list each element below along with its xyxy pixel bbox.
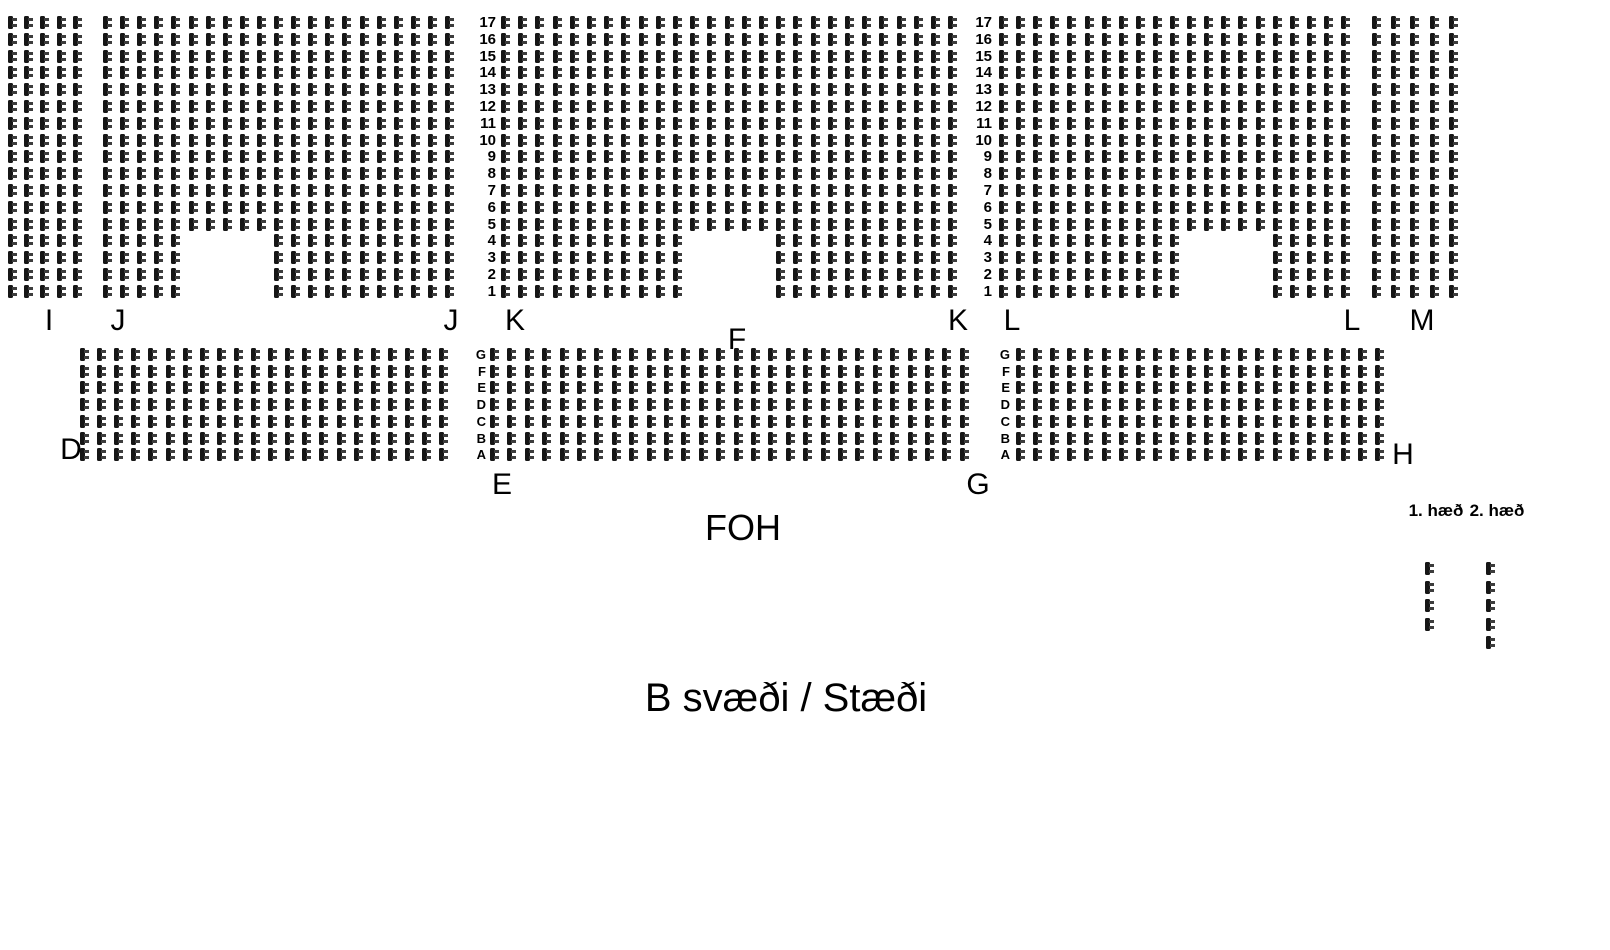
seat-icon-section-K-F[interactable]	[656, 100, 666, 113]
seat-icon-section-EG-block[interactable]	[873, 432, 883, 445]
seat-icon-section-L[interactable]	[1290, 251, 1300, 264]
seat-icon-section-K-F[interactable]	[931, 201, 941, 214]
seat-icon-section-J[interactable]	[411, 251, 421, 264]
seat-icon-section-J[interactable]	[257, 16, 267, 29]
seat-icon-section-K-F[interactable]	[707, 117, 717, 130]
seat-icon-section-J[interactable]	[274, 251, 284, 264]
seat-icon-section-I[interactable]	[24, 100, 34, 113]
seat-icon-section-K-F[interactable]	[759, 83, 769, 96]
seat-icon-section-I[interactable]	[73, 268, 83, 281]
seat-icon-section-D-block[interactable]	[131, 381, 141, 394]
seat-icon-section-J[interactable]	[428, 150, 438, 163]
seat-icon-section-H-block[interactable]	[1084, 448, 1094, 461]
seat-icon-section-J[interactable]	[171, 150, 181, 163]
seat-icon-section-I[interactable]	[24, 50, 34, 63]
seat-icon-section-K-F[interactable]	[725, 218, 735, 231]
seat-icon-section-J[interactable]	[377, 66, 387, 79]
seat-icon-section-L[interactable]	[1170, 251, 1180, 264]
seat-icon-section-L[interactable]	[1204, 150, 1214, 163]
seat-icon-section-K-F[interactable]	[793, 218, 803, 231]
seat-icon-section-L[interactable]	[1324, 201, 1334, 214]
seat-icon-section-J[interactable]	[428, 167, 438, 180]
seat-icon-section-K-F[interactable]	[656, 66, 666, 79]
seat-icon-section-EG-block[interactable]	[838, 365, 848, 378]
seat-icon-section-J[interactable]	[120, 150, 130, 163]
seat-icon-section-EG-block[interactable]	[873, 348, 883, 361]
seat-icon-section-K-F[interactable]	[707, 201, 717, 214]
seat-icon-section-J[interactable]	[428, 134, 438, 147]
seat-icon-section-K-F[interactable]	[639, 285, 649, 298]
seat-icon-section-K-F[interactable]	[879, 201, 889, 214]
seat-icon-section-K-F[interactable]	[931, 251, 941, 264]
seat-icon-section-K-F[interactable]	[604, 218, 614, 231]
seat-icon-section-J[interactable]	[428, 184, 438, 197]
seat-icon-section-K-F[interactable]	[518, 100, 528, 113]
seat-icon-section-EG-block[interactable]	[942, 448, 952, 461]
seat-icon-section-K-F[interactable]	[845, 117, 855, 130]
seat-icon-section-J[interactable]	[394, 16, 404, 29]
seat-icon-section-M[interactable]	[1430, 201, 1440, 214]
seat-icon-section-J[interactable]	[120, 33, 130, 46]
seat-icon-section-H-block[interactable]	[1102, 365, 1112, 378]
seat-icon-section-EG-block[interactable]	[821, 415, 831, 428]
seat-icon-section-H-block[interactable]	[1067, 398, 1077, 411]
seat-icon-section-I[interactable]	[57, 83, 67, 96]
seat-icon-section-H-block[interactable]	[1307, 381, 1317, 394]
seat-icon-section-M[interactable]	[1391, 184, 1401, 197]
seat-icon-section-J[interactable]	[240, 218, 250, 231]
seat-icon-section-J[interactable]	[394, 50, 404, 63]
seat-icon-section-I[interactable]	[57, 218, 67, 231]
seat-icon-section-M[interactable]	[1372, 134, 1382, 147]
seat-icon-section-J[interactable]	[206, 134, 216, 147]
seat-icon-section-K-F[interactable]	[931, 50, 941, 63]
seat-icon-section-M[interactable]	[1372, 150, 1382, 163]
seat-icon-section-J[interactable]	[171, 184, 181, 197]
seat-icon-section-L[interactable]	[1341, 150, 1351, 163]
seat-icon-section-K-F[interactable]	[639, 83, 649, 96]
seat-icon-section-EG-block[interactable]	[786, 415, 796, 428]
seat-icon-section-EG-block[interactable]	[577, 381, 587, 394]
seat-icon-section-M[interactable]	[1410, 184, 1420, 197]
seat-icon-section-EG-block[interactable]	[490, 448, 500, 461]
seat-icon-section-EG-block[interactable]	[960, 365, 970, 378]
seat-icon-section-H-block[interactable]	[1307, 398, 1317, 411]
seat-icon-section-H-block[interactable]	[1221, 432, 1231, 445]
seat-icon-section-K-F[interactable]	[811, 83, 821, 96]
seat-icon-section-L[interactable]	[1102, 100, 1112, 113]
seat-icon-section-J[interactable]	[394, 251, 404, 264]
seat-icon-section-EG-block[interactable]	[507, 381, 517, 394]
seat-icon-section-K-F[interactable]	[725, 16, 735, 29]
seat-icon-section-EG-block[interactable]	[786, 448, 796, 461]
seat-icon-section-K-F[interactable]	[553, 66, 563, 79]
seat-icon-section-J[interactable]	[154, 285, 164, 298]
seat-icon-section-K-F[interactable]	[931, 218, 941, 231]
seat-icon-section-K-F[interactable]	[604, 16, 614, 29]
seat-icon-section-H-block[interactable]	[1238, 381, 1248, 394]
seat-icon-section-L[interactable]	[1119, 16, 1129, 29]
seat-icon-section-J[interactable]	[171, 134, 181, 147]
seat-icon-section-J[interactable]	[394, 201, 404, 214]
seat-icon-section-D-block[interactable]	[337, 381, 347, 394]
seat-icon-section-H-block[interactable]	[1375, 448, 1385, 461]
seat-icon-section-EG-block[interactable]	[490, 365, 500, 378]
seat-icon-section-EG-block[interactable]	[542, 432, 552, 445]
seat-icon-section-K-F[interactable]	[845, 184, 855, 197]
seat-icon-section-K-F[interactable]	[535, 117, 545, 130]
seat-icon-section-J[interactable]	[308, 134, 318, 147]
seat-icon-section-K-F[interactable]	[879, 117, 889, 130]
seat-icon-section-L[interactable]	[1204, 201, 1214, 214]
seat-icon-section-H-block[interactable]	[1307, 432, 1317, 445]
seat-icon-section-L[interactable]	[1136, 285, 1146, 298]
seat-icon-section-I[interactable]	[57, 234, 67, 247]
seat-icon-section-D-block[interactable]	[354, 448, 364, 461]
seat-icon-section-D-block[interactable]	[183, 415, 193, 428]
seat-icon-section-L[interactable]	[1273, 184, 1283, 197]
seat-icon-section-J[interactable]	[360, 234, 370, 247]
seat-icon-section-J[interactable]	[342, 150, 352, 163]
seat-icon-section-I[interactable]	[24, 234, 34, 247]
seat-icon-section-I[interactable]	[73, 285, 83, 298]
seat-icon-section-L[interactable]	[1273, 285, 1283, 298]
seat-icon-section-K-F[interactable]	[518, 134, 528, 147]
seat-icon-section-EG-block[interactable]	[647, 448, 657, 461]
seat-icon-section-I[interactable]	[24, 16, 34, 29]
seat-icon-section-K-F[interactable]	[535, 218, 545, 231]
seat-icon-section-I[interactable]	[57, 251, 67, 264]
seat-icon-section-L[interactable]	[1307, 184, 1317, 197]
seat-icon-section-K-F[interactable]	[897, 66, 907, 79]
seat-icon-section-D-block[interactable]	[114, 398, 124, 411]
seat-icon-section-L[interactable]	[1341, 50, 1351, 63]
seat-icon-section-I[interactable]	[24, 117, 34, 130]
seat-icon-section-M[interactable]	[1430, 251, 1440, 264]
seat-icon-section-L[interactable]	[999, 134, 1009, 147]
seat-icon-section-J[interactable]	[428, 16, 438, 29]
seat-icon-section-D-block[interactable]	[217, 365, 227, 378]
seat-icon-section-J[interactable]	[360, 184, 370, 197]
seat-icon-section-M[interactable]	[1391, 285, 1401, 298]
seat-icon-section-D-block[interactable]	[200, 381, 210, 394]
seat-icon-section-L[interactable]	[999, 218, 1009, 231]
seat-icon-section-D-block[interactable]	[405, 398, 415, 411]
seat-icon-section-EG-block[interactable]	[890, 348, 900, 361]
seat-icon-section-K-F[interactable]	[673, 167, 683, 180]
seat-icon-section-L[interactable]	[1119, 100, 1129, 113]
seat-icon-section-K-F[interactable]	[828, 251, 838, 264]
seat-icon-section-EG-block[interactable]	[647, 348, 657, 361]
seat-icon-section-K-F[interactable]	[518, 251, 528, 264]
seat-icon-section-EG-block[interactable]	[734, 398, 744, 411]
seat-icon-section-K-F[interactable]	[707, 83, 717, 96]
seat-icon-section-K-F[interactable]	[811, 285, 821, 298]
seat-icon-section-K-F[interactable]	[656, 251, 666, 264]
seat-icon-section-K-F[interactable]	[501, 117, 511, 130]
seat-icon-section-J[interactable]	[257, 33, 267, 46]
seat-icon-section-J[interactable]	[394, 234, 404, 247]
seat-icon-section-J[interactable]	[120, 117, 130, 130]
seat-icon-section-K-F[interactable]	[948, 201, 958, 214]
seat-icon-section-D-block[interactable]	[405, 415, 415, 428]
seat-icon-section-J[interactable]	[342, 83, 352, 96]
seat-icon-section-D-block[interactable]	[166, 348, 176, 361]
seat-icon-section-M[interactable]	[1410, 117, 1420, 130]
seat-icon-section-L[interactable]	[999, 83, 1009, 96]
seat-icon-section-K-F[interactable]	[725, 117, 735, 130]
seat-icon-section-K-F[interactable]	[862, 184, 872, 197]
seat-icon-section-K-F[interactable]	[604, 285, 614, 298]
seat-icon-section-K-F[interactable]	[828, 218, 838, 231]
seat-icon-section-J[interactable]	[377, 251, 387, 264]
seat-icon-section-H-block[interactable]	[1170, 432, 1180, 445]
seat-icon-section-L[interactable]	[1204, 117, 1214, 130]
seat-icon-section-L[interactable]	[1238, 33, 1248, 46]
seat-icon-section-L[interactable]	[1067, 268, 1077, 281]
seat-icon-section-J[interactable]	[257, 150, 267, 163]
seat-icon-section-J[interactable]	[411, 218, 421, 231]
seat-icon-section-EG-block[interactable]	[629, 415, 639, 428]
seat-icon-section-D-block[interactable]	[285, 381, 295, 394]
seat-icon-section-D-block[interactable]	[302, 448, 312, 461]
seat-icon-section-K-F[interactable]	[776, 150, 786, 163]
seat-icon-section-M[interactable]	[1449, 16, 1459, 29]
seat-icon-section-H-block[interactable]	[1307, 448, 1317, 461]
seat-icon-section-L[interactable]	[1290, 150, 1300, 163]
seat-icon-section-K-F[interactable]	[759, 201, 769, 214]
seat-icon-section-EG-block[interactable]	[786, 398, 796, 411]
seat-icon-section-L[interactable]	[1033, 218, 1043, 231]
seat-icon-section-EG-block[interactable]	[664, 381, 674, 394]
seat-icon-section-L[interactable]	[1324, 134, 1334, 147]
seat-icon-section-D-block[interactable]	[405, 448, 415, 461]
seat-icon-section-L[interactable]	[1033, 201, 1043, 214]
seat-icon-section-K-F[interactable]	[725, 134, 735, 147]
seat-icon-section-L[interactable]	[1153, 201, 1163, 214]
seat-icon-section-J[interactable]	[171, 16, 181, 29]
seat-icon-section-J[interactable]	[103, 100, 113, 113]
seat-icon-section-M[interactable]	[1391, 167, 1401, 180]
seat-icon-section-EG-block[interactable]	[855, 348, 865, 361]
seat-icon-section-L[interactable]	[1204, 218, 1214, 231]
seat-icon-section-H-block[interactable]	[1050, 398, 1060, 411]
seat-icon-section-J[interactable]	[325, 201, 335, 214]
seat-icon-section-J[interactable]	[291, 16, 301, 29]
seat-icon-section-EG-block[interactable]	[507, 415, 517, 428]
seat-icon-section-D-block[interactable]	[388, 415, 398, 428]
seat-icon-section-K-F[interactable]	[845, 100, 855, 113]
seat-icon-section-I[interactable]	[8, 83, 18, 96]
seat-icon-section-L[interactable]	[1050, 268, 1060, 281]
seat-icon-section-M[interactable]	[1430, 117, 1440, 130]
seat-icon-section-H-block[interactable]	[1084, 348, 1094, 361]
seat-icon-section-K-F[interactable]	[914, 83, 924, 96]
seat-icon-section-J[interactable]	[445, 83, 455, 96]
seat-icon-section-J[interactable]	[189, 167, 199, 180]
seat-icon-section-D-block[interactable]	[405, 365, 415, 378]
seat-icon-section-L[interactable]	[1221, 66, 1231, 79]
seat-icon-section-K-F[interactable]	[759, 33, 769, 46]
seat-icon-section-H-block[interactable]	[1102, 348, 1112, 361]
seat-icon-section-M[interactable]	[1410, 167, 1420, 180]
seat-icon-section-D-block[interactable]	[388, 432, 398, 445]
seat-icon-section-EG-block[interactable]	[664, 432, 674, 445]
seat-icon-section-L[interactable]	[1153, 251, 1163, 264]
seat-icon-section-K-F[interactable]	[897, 150, 907, 163]
seat-icon-section-M[interactable]	[1430, 134, 1440, 147]
seat-icon-section-K-F[interactable]	[587, 167, 597, 180]
seat-icon-section-D-block[interactable]	[97, 432, 107, 445]
seat-icon-section-D-block[interactable]	[371, 381, 381, 394]
seat-icon-section-M[interactable]	[1430, 218, 1440, 231]
seat-icon-section-H-block[interactable]	[1136, 348, 1146, 361]
seat-icon-section-K-F[interactable]	[639, 167, 649, 180]
seat-icon-section-D-block[interactable]	[405, 348, 415, 361]
seat-icon-section-K-F[interactable]	[518, 83, 528, 96]
seat-icon-section-K-F[interactable]	[553, 167, 563, 180]
seat-icon-section-EG-block[interactable]	[647, 398, 657, 411]
seat-icon-section-J[interactable]	[274, 100, 284, 113]
seat-icon-section-J[interactable]	[342, 134, 352, 147]
seat-icon-section-K-F[interactable]	[725, 50, 735, 63]
seat-icon-section-K-F[interactable]	[862, 201, 872, 214]
seat-icon-section-I[interactable]	[40, 201, 50, 214]
seat-icon-section-L[interactable]	[1033, 285, 1043, 298]
seat-icon-section-L[interactable]	[1085, 50, 1095, 63]
seat-icon-section-I[interactable]	[24, 184, 34, 197]
seat-icon-section-K-F[interactable]	[621, 134, 631, 147]
seat-icon-section-L[interactable]	[1221, 167, 1231, 180]
seat-icon-section-L[interactable]	[1050, 83, 1060, 96]
seat-icon-section-EG-block[interactable]	[751, 381, 761, 394]
seat-icon-section-H-block[interactable]	[1238, 448, 1248, 461]
seat-icon-section-EG-block[interactable]	[560, 432, 570, 445]
seat-icon-section-J[interactable]	[445, 167, 455, 180]
seat-icon-section-D-block[interactable]	[268, 365, 278, 378]
seat-icon-section-L[interactable]	[1170, 285, 1180, 298]
seat-icon-section-H-block[interactable]	[1033, 398, 1043, 411]
seat-icon-section-D-block[interactable]	[439, 381, 449, 394]
seat-icon-section-EG-block[interactable]	[681, 348, 691, 361]
seat-icon-section-J[interactable]	[308, 285, 318, 298]
seat-icon-section-L[interactable]	[1221, 50, 1231, 63]
seat-icon-section-EG-block[interactable]	[838, 348, 848, 361]
seat-icon-section-J[interactable]	[274, 167, 284, 180]
seat-icon-section-K-F[interactable]	[570, 150, 580, 163]
seat-icon-section-L[interactable]	[1102, 268, 1112, 281]
seat-icon-section-L[interactable]	[1050, 234, 1060, 247]
seat-icon-section-EG-block[interactable]	[734, 381, 744, 394]
seat-icon-section-EG-block[interactable]	[821, 398, 831, 411]
seat-icon-section-K-F[interactable]	[725, 100, 735, 113]
seat-icon-section-K-F[interactable]	[793, 268, 803, 281]
seat-icon-section-K-F[interactable]	[553, 184, 563, 197]
seat-icon-section-H-block[interactable]	[1204, 348, 1214, 361]
seat-icon-section-K-F[interactable]	[793, 33, 803, 46]
seat-icon-section-L[interactable]	[1016, 50, 1026, 63]
seat-icon-section-I[interactable]	[40, 251, 50, 264]
seat-icon-section-K-F[interactable]	[948, 218, 958, 231]
seat-icon-section-L[interactable]	[1136, 167, 1146, 180]
seat-icon-section-J[interactable]	[360, 218, 370, 231]
seat-icon-section-L[interactable]	[1136, 117, 1146, 130]
seat-icon-section-K-F[interactable]	[742, 33, 752, 46]
seat-icon-section-L[interactable]	[1307, 83, 1317, 96]
seat-icon-section-K-F[interactable]	[656, 83, 666, 96]
seat-icon-section-K-F[interactable]	[793, 83, 803, 96]
seat-icon-section-J[interactable]	[308, 100, 318, 113]
seat-icon-section-J[interactable]	[377, 184, 387, 197]
seat-icon-section-J[interactable]	[291, 167, 301, 180]
seat-icon-section-L[interactable]	[1238, 167, 1248, 180]
seat-icon-section-I[interactable]	[57, 66, 67, 79]
seat-icon-section-L[interactable]	[1170, 134, 1180, 147]
seat-icon-section-D-block[interactable]	[80, 415, 90, 428]
seat-icon-section-L[interactable]	[1256, 167, 1266, 180]
seat-icon-section-D-block[interactable]	[97, 448, 107, 461]
seat-icon-section-J[interactable]	[103, 234, 113, 247]
seat-icon-section-H-block[interactable]	[1136, 432, 1146, 445]
seat-icon-section-L[interactable]	[1102, 33, 1112, 46]
seat-icon-section-J[interactable]	[103, 285, 113, 298]
seat-icon-section-J[interactable]	[428, 66, 438, 79]
seat-icon-section-L[interactable]	[1324, 83, 1334, 96]
seat-icon-section-H-block[interactable]	[1324, 348, 1334, 361]
seat-icon-section-D-block[interactable]	[217, 432, 227, 445]
seat-icon-section-H-block[interactable]	[1033, 432, 1043, 445]
seat-icon-section-J[interactable]	[137, 117, 147, 130]
seat-icon-section-EG-block[interactable]	[821, 448, 831, 461]
seat-icon-section-EG-block[interactable]	[699, 448, 709, 461]
seat-icon-section-J[interactable]	[360, 201, 370, 214]
seat-icon-section-L[interactable]	[1341, 184, 1351, 197]
seat-icon-section-K-F[interactable]	[862, 33, 872, 46]
seat-icon-section-H-block[interactable]	[1221, 415, 1231, 428]
seat-icon-section-H-block[interactable]	[1375, 365, 1385, 378]
seat-icon-section-K-F[interactable]	[656, 150, 666, 163]
seat-icon-section-L[interactable]	[1273, 234, 1283, 247]
seat-icon-section-M[interactable]	[1430, 100, 1440, 113]
seat-icon-section-K-F[interactable]	[501, 251, 511, 264]
seat-icon-section-K-F[interactable]	[914, 268, 924, 281]
seat-icon-section-H-block[interactable]	[1204, 448, 1214, 461]
seat-icon-section-L[interactable]	[1256, 150, 1266, 163]
seat-icon-section-K-F[interactable]	[879, 16, 889, 29]
seat-icon-section-H-block[interactable]	[1170, 398, 1180, 411]
seat-icon-section-M[interactable]	[1410, 33, 1420, 46]
seat-icon-section-EG-block[interactable]	[594, 365, 604, 378]
seat-icon-section-D-block[interactable]	[319, 432, 329, 445]
seat-icon-section-L[interactable]	[1102, 201, 1112, 214]
seat-icon-section-H-block[interactable]	[1221, 448, 1231, 461]
seat-icon-section-J[interactable]	[240, 167, 250, 180]
seat-icon-section-K-F[interactable]	[639, 66, 649, 79]
seat-icon-section-D-block[interactable]	[268, 348, 278, 361]
seat-icon-section-K-F[interactable]	[639, 134, 649, 147]
seat-icon-section-L[interactable]	[1016, 134, 1026, 147]
seat-icon-section-EG-block[interactable]	[507, 398, 517, 411]
seat-icon-section-J[interactable]	[103, 218, 113, 231]
seat-icon-section-D-block[interactable]	[234, 448, 244, 461]
seat-icon-section-L[interactable]	[1307, 150, 1317, 163]
seat-icon-section-K-F[interactable]	[845, 16, 855, 29]
seat-icon-section-I[interactable]	[24, 83, 34, 96]
seat-icon-section-J[interactable]	[189, 33, 199, 46]
seat-icon-section-J[interactable]	[291, 66, 301, 79]
seat-icon-section-K-F[interactable]	[897, 167, 907, 180]
seat-icon-section-J[interactable]	[240, 83, 250, 96]
